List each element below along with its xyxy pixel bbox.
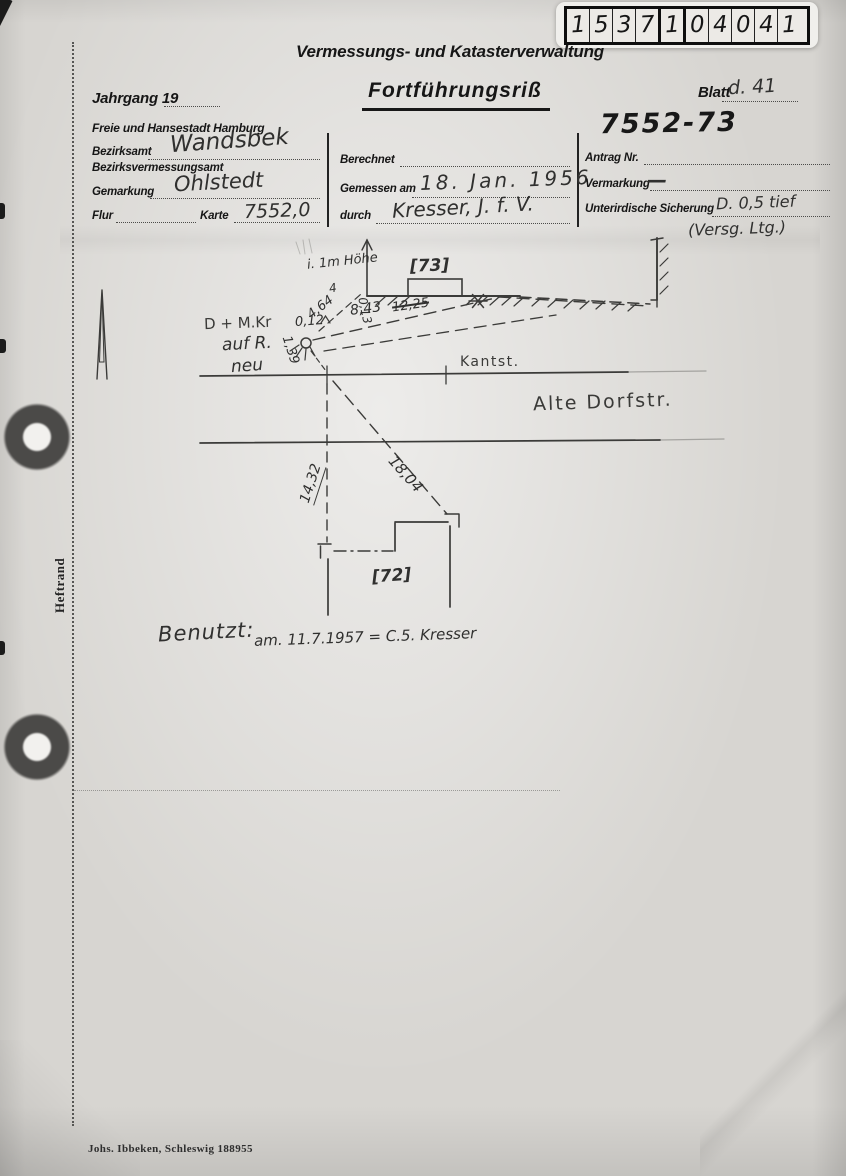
punch-hole	[3, 713, 71, 781]
dotted-fill-line	[376, 223, 570, 224]
street-name-label: Alte Dorfstr.	[533, 389, 673, 416]
punch-hole	[3, 403, 71, 471]
usage-note-label: Benutzt:	[157, 617, 255, 646]
stamp-digit: 4	[712, 12, 728, 39]
stamp-digit: 3	[616, 12, 632, 39]
scan-edge-artifact	[0, 641, 5, 655]
dotted-fill-line	[644, 164, 830, 165]
gemessen-value: 18. Jan. 1956	[420, 165, 592, 195]
dotted-fill-line	[116, 222, 196, 223]
fold-dotted-line	[74, 790, 560, 791]
parcel-73-boundary	[296, 238, 668, 311]
stamp-digit: 4	[758, 12, 774, 39]
stamp-digit: 0	[735, 12, 751, 39]
scan-edge-artifact	[0, 339, 6, 353]
scan-edge-artifact	[0, 0, 13, 26]
point-note-line3: neu	[230, 355, 263, 377]
jahrgang-label: Jahrgang 19	[92, 90, 178, 107]
printer-credit: Johs. Ibbeken, Schleswig 188955	[88, 1143, 253, 1155]
stamp-digit: 7	[639, 12, 655, 39]
point-note-line1: D + M.Kr	[204, 313, 272, 333]
antrag-label: Antrag Nr.	[585, 152, 639, 164]
blatt-value: d. 41	[727, 75, 776, 99]
blatt-label: Blatt	[698, 84, 730, 101]
form-title: Fortführungsriß	[355, 79, 555, 103]
measure-4: 4	[328, 280, 338, 295]
point-note-line2: auf R.	[222, 333, 273, 356]
gemarkung-label: Gemarkung	[92, 186, 154, 198]
measure-1-39: 1,39	[279, 334, 302, 366]
curb-label: Kantst.	[460, 354, 520, 370]
binding-margin-line	[72, 42, 74, 1126]
measure-14-32: 14,32	[297, 462, 327, 506]
gemessen-label: Gemessen am	[340, 183, 416, 195]
dotted-fill-line	[164, 106, 220, 107]
measure-8-43: 8,43	[349, 299, 382, 319]
dotted-fill-line	[722, 101, 798, 102]
stamp-digit: 1	[781, 12, 797, 39]
vermarkung-label: Vermarkung	[585, 178, 650, 190]
dotted-fill-line	[234, 222, 320, 223]
stamp-digit: 1	[570, 12, 586, 39]
measure-18-04: 18,04	[385, 452, 427, 496]
dotted-fill-line	[148, 159, 320, 160]
flur-label: Flur	[92, 210, 113, 222]
scanned-document-page: Heftrand 1 5 3 7 1 0 4 0 4 1 Vermessungs…	[0, 0, 846, 1176]
berechnet-label: Berechnet	[340, 154, 394, 166]
column-divider	[327, 133, 329, 227]
measure-12-25: 12,25	[391, 295, 430, 315]
gemarkung-value: Ohlstedt	[173, 168, 263, 197]
sicherung-value: D. 0,5 tief	[716, 192, 796, 214]
sicherung-label: Unterirdische Sicherung	[585, 203, 714, 215]
heftrand-label: Heftrand	[52, 558, 68, 613]
sicherung-note: (Versg. Ltg.)	[688, 217, 787, 239]
stamp-digit: 5	[593, 12, 609, 39]
title-underline	[362, 108, 550, 111]
parcel-72-label: [72]	[371, 565, 412, 588]
scan-edge-artifact	[0, 203, 5, 219]
measure-0-12: 0,12	[295, 313, 325, 330]
height-note: i. 1m Höhe	[306, 250, 378, 272]
stamp-digit-grid: 1 5 3 7 1 0 4 0 4 1	[564, 6, 810, 45]
measurement-lines	[313, 294, 648, 542]
durch-label: durch	[340, 210, 371, 222]
parcel-72-building-outline	[318, 514, 459, 615]
bezirksamt-label: Bezirksamt	[92, 146, 151, 158]
parcel-73-label: [73]	[410, 255, 450, 276]
stamp-digit: 0	[689, 12, 705, 39]
dotted-fill-line	[650, 190, 830, 191]
karte-value: 7552,0	[244, 199, 311, 223]
north-arrow	[97, 290, 107, 379]
karte-label: Karte	[200, 210, 228, 222]
administration-title: Vermessungs- und Katasterverwaltung	[250, 42, 650, 62]
paper-crease	[700, 980, 846, 1176]
usage-note-value: am. 11.7.1957 = C.5. Kresser	[254, 624, 477, 650]
paper-crease	[0, 1040, 140, 1176]
file-number: 7552-73	[600, 107, 738, 140]
vermarkung-value: —	[647, 168, 667, 192]
stamp-digit: 1	[664, 12, 680, 39]
